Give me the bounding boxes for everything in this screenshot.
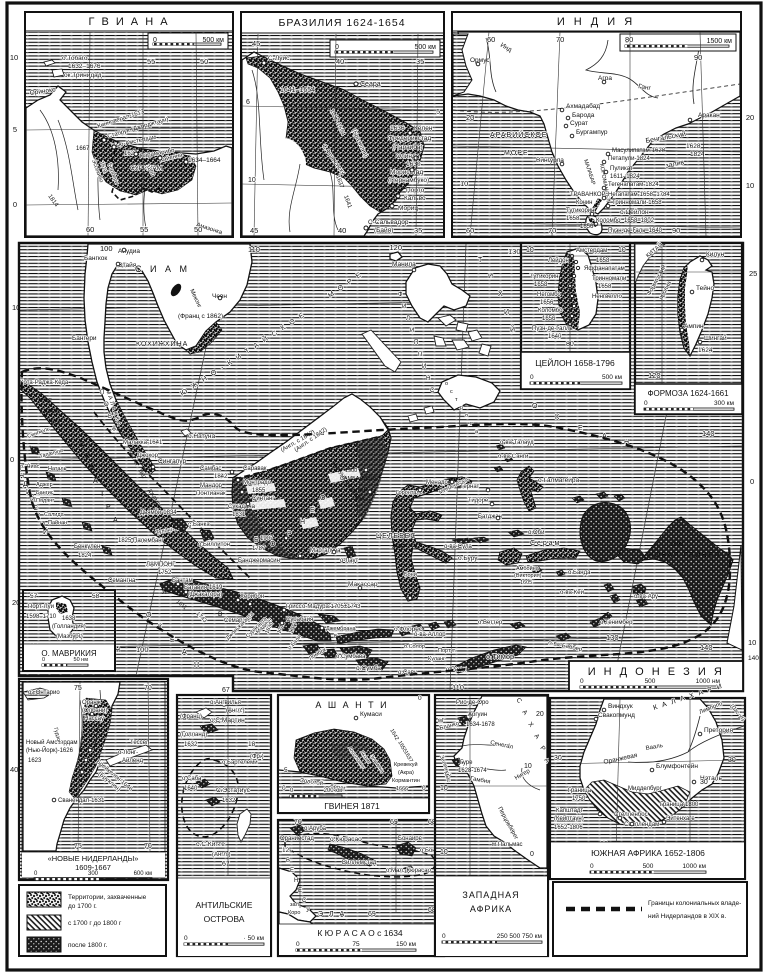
svg-text:А Ш А Н Т И: А Ш А Н Т И xyxy=(315,700,388,710)
svg-text:10: 10 xyxy=(746,181,754,190)
svg-text:1634-1678: 1634-1678 xyxy=(466,722,495,728)
svg-text:1855: 1855 xyxy=(252,488,266,494)
svg-text:0: 0 xyxy=(282,785,286,792)
svg-text:Паданг: Паданг xyxy=(36,498,54,504)
svg-text:0: 0 xyxy=(580,678,584,685)
svg-text:1632–1676: 1632–1676 xyxy=(68,63,101,70)
svg-text:Батавия-1619: Батавия-1619 xyxy=(184,585,223,591)
svg-text:М: М xyxy=(88,465,94,472)
svg-text:зал.: зал. xyxy=(290,902,301,908)
svg-text:о.Саба: о.Саба xyxy=(182,776,202,782)
svg-text:ФОРМОЗА 1624-1661: ФОРМОЗА 1624-1661 xyxy=(647,389,729,398)
svg-text:1640: 1640 xyxy=(548,334,562,340)
svg-text:0: 0 xyxy=(644,400,648,407)
svg-text:Сукадана: Сукадана xyxy=(228,504,256,510)
svg-text:МОРЕ: МОРЕ xyxy=(504,150,529,157)
svg-text:Манила: Манила xyxy=(392,261,416,268)
svg-text:о.Тимор: о.Тимор xyxy=(486,652,514,661)
svg-text:Самбас: Самбас xyxy=(200,466,221,472)
svg-text:1628: 1628 xyxy=(686,143,701,150)
svg-text:1658: 1658 xyxy=(566,216,580,222)
svg-text:Масулипатам-1628: Масулипатам-1628 xyxy=(612,148,666,154)
svg-text:55: 55 xyxy=(140,225,148,234)
svg-text:100: 100 xyxy=(136,645,149,654)
svg-text:Херибон: Херибон xyxy=(240,594,264,600)
svg-text:Свеллендам: Свеллендам xyxy=(624,822,659,828)
svg-text:1598–1710: 1598–1710 xyxy=(26,614,57,620)
svg-text:Коломбо: Коломбо xyxy=(538,308,563,314)
svg-text:Аракан: Аракан xyxy=(698,112,720,119)
svg-text:И Н Д И Я: И Н Д И Я xyxy=(557,16,635,28)
svg-text:ЛУВУ: ЛУВУ xyxy=(392,544,407,550)
svg-text:75: 75 xyxy=(352,941,360,948)
svg-text:Тринномали-1658: Тринномали-1658 xyxy=(612,200,662,206)
svg-text:АФРИКА: АФРИКА xyxy=(470,904,512,914)
svg-text:Р: Р xyxy=(106,504,111,511)
svg-text:Тегенапатам-1824: Тегенапатам-1824 xyxy=(608,182,659,188)
svg-text:300 км: 300 км xyxy=(714,400,734,407)
svg-text:о-Лонг-: о-Лонг- xyxy=(118,750,138,756)
svg-text:300: 300 xyxy=(88,871,99,877)
svg-text:САМБАЛИУНГ: САМБАЛИУНГ xyxy=(340,476,377,482)
svg-text:1907: 1907 xyxy=(260,536,274,542)
svg-text:140: 140 xyxy=(702,429,715,438)
svg-text:АНТИЛЬСКИЕ: АНТИЛЬСКИЕ xyxy=(196,900,253,910)
svg-text:Макассар: Макассар xyxy=(348,581,378,588)
svg-text:130: 130 xyxy=(508,247,521,256)
svg-text:Эйтенхаге: Эйтенхаге xyxy=(666,815,695,822)
svg-text:Тернат: Тернат xyxy=(460,484,480,490)
svg-text:Бангкок: Бангкок xyxy=(84,255,107,262)
svg-text:Э Л А: Э Л А xyxy=(318,911,346,918)
svg-text:100: 100 xyxy=(100,244,113,253)
svg-text:с 1700 г до 1800 г: с 1700 г до 1800 г xyxy=(68,920,122,927)
svg-text:500 км: 500 км xyxy=(602,374,622,381)
svg-text:1632: 1632 xyxy=(222,798,236,804)
svg-text:45: 45 xyxy=(252,39,260,48)
svg-text:Ненгвелло: Ненгвелло xyxy=(592,294,622,300)
svg-text:ЮЖНАЯ АФРИКА 1652-1806: ЮЖНАЯ АФРИКА 1652-1806 xyxy=(591,848,705,858)
svg-text:о.Оби: о.Оби xyxy=(528,530,544,536)
svg-text:(Нью-Йорк)-1626: (Нью-Йорк)-1626 xyxy=(26,746,74,754)
svg-text:250 500 750 км: 250 500 750 км xyxy=(497,933,543,940)
svg-text:о."Ниас: о."Ниас xyxy=(20,464,40,470)
svg-text:Порто: Порто xyxy=(406,187,425,194)
svg-text:Н: Н xyxy=(300,519,305,526)
svg-text:П: П xyxy=(418,352,422,358)
svg-text:Я: Я xyxy=(162,589,167,596)
svg-text:Гуре: Гуре xyxy=(460,760,473,766)
svg-text:Саравак: Саравак xyxy=(243,466,267,472)
svg-text:Граница: Граница xyxy=(568,788,592,794)
svg-text:АРАВИЙСКОЕ: АРАВИЙСКОЕ xyxy=(490,130,547,139)
svg-text:о.Буру: о.Буру xyxy=(458,555,478,562)
svg-text:1824: 1824 xyxy=(78,553,92,559)
svg-text:о.С.Китте: о.С.Китте xyxy=(196,841,225,848)
svg-text:70: 70 xyxy=(144,685,152,692)
svg-text:о.Тобаго: о.Тобаго xyxy=(62,54,88,62)
svg-text:600 км: 600 км xyxy=(134,871,152,877)
svg-text:1844: 1844 xyxy=(352,496,364,502)
svg-text:1640: 1640 xyxy=(184,786,198,792)
svg-text:12-: 12- xyxy=(282,847,291,854)
svg-text:о.Натуна: о.Натуна xyxy=(188,433,215,440)
svg-text:Ампин: Ампин xyxy=(684,323,704,330)
svg-text:75: 75 xyxy=(74,685,82,692)
svg-text:Бонаире: Бонаире xyxy=(398,836,423,842)
svg-text:Бангис: Бангис xyxy=(36,490,54,496)
svg-text:ОСТРОВА: ОСТРОВА xyxy=(204,914,245,924)
svg-text:о-Галмагейра: о-Галмагейра xyxy=(538,476,580,484)
svg-text:Понтианак: Понтианак xyxy=(196,491,226,497)
svg-text:Морисстад: Морисстад xyxy=(390,169,423,176)
svg-text:Свакопмунд: Свакопмунд xyxy=(598,712,635,719)
svg-text:1656: 1656 xyxy=(542,316,556,322)
svg-text:о.Солор: о.Солор xyxy=(404,644,425,650)
svg-text:Е: Е xyxy=(578,425,583,432)
svg-text:0: 0 xyxy=(10,455,14,464)
svg-text:Е: Е xyxy=(290,868,294,874)
svg-text:· 50 км: · 50 км xyxy=(244,935,265,942)
svg-text:1634–1664: 1634–1664 xyxy=(188,157,221,164)
svg-text:(Параиба): (Параиба) xyxy=(392,143,423,151)
svg-text:А: А xyxy=(113,517,118,524)
svg-text:о-ва-Санги: о-ва-Санги xyxy=(498,454,528,460)
svg-text:И: И xyxy=(410,328,414,334)
svg-text:Джохор: Джохор xyxy=(137,453,159,459)
svg-text:5: 5 xyxy=(284,767,288,774)
svg-text:(Виктория): (Виктория) xyxy=(514,573,542,579)
svg-text:110: 110 xyxy=(248,245,260,254)
svg-text:А: А xyxy=(112,426,116,432)
svg-text:(Олбани): (Олбани) xyxy=(82,708,107,714)
svg-text:Мидделбург: Мидделбург xyxy=(628,786,663,792)
svg-text:67: 67 xyxy=(222,861,230,868)
svg-text:ЛАМПОНГ: ЛАМПОНГ xyxy=(146,562,176,568)
svg-text:50: 50 xyxy=(200,57,208,66)
svg-text:Н: Н xyxy=(426,376,430,382)
svg-text:Аджер: Аджер xyxy=(36,482,53,488)
svg-text:С И А М: С И А М xyxy=(135,264,190,274)
svg-text:1872: 1872 xyxy=(48,420,60,426)
svg-text:И Н Д О Н Е З И Я: И Н Д О Н Е З И Я xyxy=(588,666,725,678)
svg-text:Порт-Луи: Порт-Луи xyxy=(28,604,54,610)
svg-text:Т: Т xyxy=(478,257,483,264)
svg-text:35: 35 xyxy=(414,226,422,235)
svg-text:Пузн-де-Галль: Пузн-де-Галль xyxy=(532,326,573,332)
svg-text:(Байя): (Байя) xyxy=(374,226,393,234)
svg-text:1611–1824: 1611–1824 xyxy=(610,174,640,180)
svg-text:Пайнан: Пайнан xyxy=(48,519,67,526)
svg-text:Пуэн-де-Галь–1640: Пуэн-де-Галь–1640 xyxy=(608,228,663,234)
svg-text:Мандор: Мандор xyxy=(200,483,223,489)
svg-text:о-ва-Ару: о-ва-Ару xyxy=(634,594,658,600)
svg-text:Сингапур: Сингапур xyxy=(158,458,186,465)
svg-text:«НОВЫЕ НИДЕРЛАНДЫ»: «НОВЫЕ НИДЕРЛАНДЫ» xyxy=(48,854,139,863)
svg-text:10: 10 xyxy=(526,247,534,254)
svg-text:1658–1802: 1658–1802 xyxy=(624,218,655,224)
svg-text:1628-1674: 1628-1674 xyxy=(458,768,487,774)
svg-text:57: 57 xyxy=(30,593,38,600)
svg-text:10: 10 xyxy=(12,303,20,312)
svg-text:Блумфонтейн: Блумфонтейн xyxy=(656,762,698,770)
svg-text:10: 10 xyxy=(10,53,18,62)
svg-text:1500 км: 1500 км xyxy=(707,38,733,45)
svg-text:ЦЕЛЕБЕС: ЦЕЛЕБЕС xyxy=(376,533,416,540)
svg-text:Семангна: Семангна xyxy=(108,578,136,584)
svg-text:(Мазбург): (Мазбург) xyxy=(56,634,83,640)
svg-text:С: С xyxy=(80,441,85,448)
svg-text:500: 500 xyxy=(643,863,654,870)
svg-text:0: 0 xyxy=(422,785,426,792)
svg-text:1636: 1636 xyxy=(390,125,405,132)
svg-text:Менадо: Менадо xyxy=(426,480,449,486)
svg-text:с: с xyxy=(450,389,453,395)
svg-text:С: С xyxy=(430,388,435,394)
svg-text:о.Банда: о.Банда xyxy=(568,570,591,576)
svg-text:ок.Тринидад: ок.Тринидад xyxy=(64,72,102,79)
svg-text:о-Лаут: о-Лаут xyxy=(340,558,359,564)
svg-text:20: 20 xyxy=(536,711,544,718)
svg-text:Куланг: Куланг xyxy=(428,656,445,662)
svg-text:5: 5 xyxy=(13,125,17,134)
svg-text:В: В xyxy=(108,414,112,420)
svg-text:0: 0 xyxy=(296,941,300,948)
svg-text:С.Эстатиус: С.Эстатиус xyxy=(216,787,251,794)
svg-text:Малакка-1641: Малакка-1641 xyxy=(123,440,163,446)
svg-text:Кота-Раджа-Кеда: Кота-Раджа-Кеда xyxy=(20,380,69,386)
svg-text:60: 60 xyxy=(466,226,474,235)
svg-text:ГВИНЕЯ 1871: ГВИНЕЯ 1871 xyxy=(324,801,380,811)
svg-text:55: 55 xyxy=(147,57,155,66)
svg-text:0: 0 xyxy=(530,374,534,381)
svg-text:ЗАПАДНАЯ: ЗАПАДНАЯ xyxy=(462,890,519,900)
svg-text:10: 10 xyxy=(460,179,468,188)
svg-text:Амстердам: Амстердам xyxy=(576,248,607,254)
svg-text:10: 10 xyxy=(524,763,532,770)
svg-text:о: о xyxy=(465,413,468,419)
svg-text:0: 0 xyxy=(184,935,188,942)
svg-text:Виндхук: Виндхук xyxy=(608,703,633,710)
svg-text:Монтрадо: Монтрадо xyxy=(243,480,272,486)
svg-text:о.Сумбава: о.Сумбава xyxy=(336,654,366,660)
svg-text:о.Тенимбер: о.Тенимбер xyxy=(600,620,633,626)
svg-text:Территории, захваченные: Территории, захваченные xyxy=(68,894,147,901)
svg-text:Пуликат: Пуликат xyxy=(610,166,633,172)
svg-text:И: И xyxy=(488,273,493,280)
svg-text:Претория: Претория xyxy=(704,727,733,734)
svg-text:о.Кюрасао: о.Кюрасао xyxy=(330,836,362,843)
svg-text:о.Веттер: о.Веттер xyxy=(478,620,503,626)
svg-text:58: 58 xyxy=(92,593,100,600)
svg-text:10: 10 xyxy=(440,849,448,856)
svg-text:1641–1654: 1641–1654 xyxy=(280,87,315,94)
svg-text:о-ва-Сула: о-ва-Сула xyxy=(444,544,472,550)
svg-text:Границы колониальных владе-: Границы колониальных владе- xyxy=(648,900,741,907)
svg-text:Португ.: Португ. xyxy=(438,648,457,654)
svg-text:1658: 1658 xyxy=(598,284,612,290)
svg-text:1825 Палембанг: 1825 Палембанг xyxy=(118,538,165,544)
svg-text:200 км: 200 км xyxy=(324,788,342,794)
svg-text:0: 0 xyxy=(750,477,754,486)
svg-text:Тессел: Тессел xyxy=(130,740,150,746)
svg-text:Ораниестад: Ораниестад xyxy=(280,836,314,842)
svg-text:до 1700 г.: до 1700 г. xyxy=(68,903,97,910)
svg-text:40: 40 xyxy=(10,765,18,774)
svg-text:У: У xyxy=(85,453,90,460)
svg-text:Граница-1800: Граница-1800 xyxy=(660,802,699,808)
svg-text:1605: 1605 xyxy=(520,580,532,586)
svg-text:0: 0 xyxy=(13,200,17,209)
svg-text:о.Цейлон: о.Цейлон xyxy=(620,208,649,216)
svg-text:75: 75 xyxy=(74,843,82,850)
svg-text:1752: 1752 xyxy=(158,570,172,576)
svg-text:70: 70 xyxy=(144,843,152,850)
svg-text:1831: 1831 xyxy=(232,512,246,518)
svg-text:мГ: мГ xyxy=(438,718,445,724)
svg-text:В: В xyxy=(218,611,222,618)
svg-text:Кормантин: Кормантин xyxy=(392,778,420,784)
svg-text:Бони: Бони xyxy=(404,572,417,578)
svg-text:Коро: Коро xyxy=(288,910,300,916)
svg-text:Тутикорин: Тутикорин xyxy=(530,274,558,280)
svg-text:Н: Н xyxy=(194,662,199,669)
svg-text:Сурабайя: Сурабайя xyxy=(286,616,313,623)
svg-text:Фредерикстад: Фредерикстад xyxy=(388,135,431,142)
svg-text:У: У xyxy=(306,908,310,914)
svg-text:Л: Л xyxy=(406,316,410,322)
svg-text:1900: 1900 xyxy=(345,468,357,474)
svg-text:р: р xyxy=(460,405,463,411)
svg-text:Х: Х xyxy=(498,291,503,298)
svg-text:20: 20 xyxy=(466,113,474,122)
svg-text:1658: 1658 xyxy=(596,258,610,264)
svg-text:1624: 1624 xyxy=(698,347,713,354)
svg-text:(Франц с 1862): (Франц с 1862) xyxy=(178,313,223,320)
svg-text:(Джакатора): (Джакатора) xyxy=(188,592,222,598)
svg-text:1000 км: 1000 км xyxy=(682,863,706,870)
svg-text:18: 18 xyxy=(248,741,256,748)
svg-text:А: А xyxy=(93,478,98,485)
svg-text:90: 90 xyxy=(672,226,680,235)
svg-text:6: 6 xyxy=(246,99,250,106)
svg-text:Аргуин: Аргуин xyxy=(468,712,487,718)
svg-text:Мартапура: Мартапура xyxy=(310,548,341,554)
svg-text:ний Нидерландов в XIX в.: ний Нидерландов в XIX в. xyxy=(648,912,726,920)
svg-text:Синтанг: Синтанг xyxy=(252,496,275,502)
svg-text:Г В И А Н А: Г В И А Н А xyxy=(88,16,169,28)
svg-text:С-Сальвадор: С-Сальвадор xyxy=(368,219,409,226)
svg-text:(Голланд): (Голланд) xyxy=(180,732,207,738)
svg-text:оз.Онтарио: оз.Онтарио xyxy=(28,690,60,696)
svg-text:40: 40 xyxy=(336,57,344,66)
svg-text:о: о xyxy=(445,381,448,387)
svg-text:(Голландия): (Голландия) xyxy=(52,624,86,630)
svg-text:Бангери: Бангери xyxy=(72,335,97,342)
svg-text:150 км: 150 км xyxy=(396,941,416,948)
svg-text:о.Бартелеми: о.Бартелеми xyxy=(222,760,258,766)
svg-text:Тейно: Тейно xyxy=(696,284,714,292)
svg-text:Негапатам-1658–1784: Негапатам-1658–1784 xyxy=(608,192,670,198)
svg-text:500: 500 xyxy=(645,678,656,685)
svg-text:С: С xyxy=(302,898,307,904)
svg-text:70: 70 xyxy=(548,226,556,235)
svg-text:Айудиа: Айудиа xyxy=(118,247,140,255)
svg-text:1842: 1842 xyxy=(214,474,228,480)
svg-text:К Ю Р А С А О с 1634: К Ю Р А С А О с 1634 xyxy=(317,928,403,938)
svg-text:Барода: Барода xyxy=(572,112,595,119)
svg-text:о.Ангвилья: о.Ангвилья xyxy=(210,700,241,706)
svg-text:Кочин: Кочин xyxy=(576,200,593,206)
svg-text:ДЕЛИ: ДЕЛИ xyxy=(44,409,59,415)
svg-text:АТЬЕ: АТЬЕ xyxy=(38,398,52,404)
svg-text:Й: Й xyxy=(510,325,515,334)
svg-text:1667: 1667 xyxy=(76,146,90,152)
svg-text:80: 80 xyxy=(625,35,633,44)
svg-text:О: О xyxy=(146,612,152,619)
svg-text:130: 130 xyxy=(606,633,619,642)
svg-text:120: 120 xyxy=(389,243,402,252)
svg-text:Наталь: Наталь xyxy=(48,466,67,472)
svg-text:Сванендал-1631: Сванендал-1631 xyxy=(58,798,105,804)
svg-text:Килун: Килун xyxy=(706,251,724,258)
svg-text:о-ва-Талауд: о-ва-Талауд xyxy=(500,440,534,446)
svg-text:(Кейптаун): (Кейптаун) xyxy=(554,815,584,822)
svg-text:И: И xyxy=(402,304,406,310)
svg-text:о.С.Мартин: о.С.Мартин xyxy=(210,717,245,724)
svg-text:1658: 1658 xyxy=(534,282,548,288)
svg-text:о-ва-Кей: о-ва-Кей xyxy=(560,589,584,596)
svg-text:70: 70 xyxy=(556,35,564,44)
svg-text:0: 0 xyxy=(442,933,446,940)
svg-text:1898: 1898 xyxy=(670,542,684,548)
svg-text:о:Сумба: о:Сумба xyxy=(356,664,381,672)
svg-text:НОВАЯ ГВИНЕЯ: НОВАЯ ГВИНЕЯ xyxy=(648,552,721,559)
svg-text:45: 45 xyxy=(250,226,258,235)
svg-text:Сурат: Сурат xyxy=(570,120,588,127)
svg-text:П: П xyxy=(414,340,418,346)
svg-text:Лейдон: Лейдон xyxy=(548,257,569,264)
svg-text:Яффанапатам: Яффанапатам xyxy=(584,266,625,272)
svg-text:50 нм: 50 нм xyxy=(74,657,89,663)
svg-text:69: 69 xyxy=(368,911,376,918)
svg-text:Салида: Салида xyxy=(44,512,65,518)
svg-text:40: 40 xyxy=(338,226,346,235)
svg-text:30: 30 xyxy=(700,779,708,786)
svg-text:Рио де-Оро: Рио де-Оро xyxy=(456,700,489,706)
svg-text:1638: 1638 xyxy=(62,616,76,622)
svg-text:Виллемстад: Виллемстад xyxy=(342,860,377,866)
svg-text:67: 67 xyxy=(222,687,230,694)
svg-text:(Пернамбуко): (Пернамбуко) xyxy=(388,176,429,184)
svg-text:(Франц): (Франц) xyxy=(180,714,202,720)
svg-text:10: 10 xyxy=(618,247,626,254)
svg-text:Петапули-1824: Петапули-1824 xyxy=(608,156,650,162)
svg-text:Бантам: Бантам xyxy=(172,578,193,584)
svg-text:Бенкулен: Бенкулен xyxy=(74,544,100,550)
svg-text:30: 30 xyxy=(554,755,562,762)
svg-text:Кревекуй: Кревекуй xyxy=(394,761,418,768)
svg-text:5: 5 xyxy=(436,109,440,116)
svg-text:1656: 1656 xyxy=(540,300,554,306)
svg-text:В: В xyxy=(286,858,290,864)
svg-text:о.Мал.-Кюрасао: о.Мал.-Кюрасао xyxy=(386,868,432,874)
svg-text:О: О xyxy=(270,541,276,548)
svg-text:о:Аруба: о:Аруба xyxy=(304,826,327,832)
svg-text:140: 140 xyxy=(748,655,759,662)
svg-text:Айленд: Айленд xyxy=(122,757,144,764)
svg-text:0: 0 xyxy=(590,863,594,870)
